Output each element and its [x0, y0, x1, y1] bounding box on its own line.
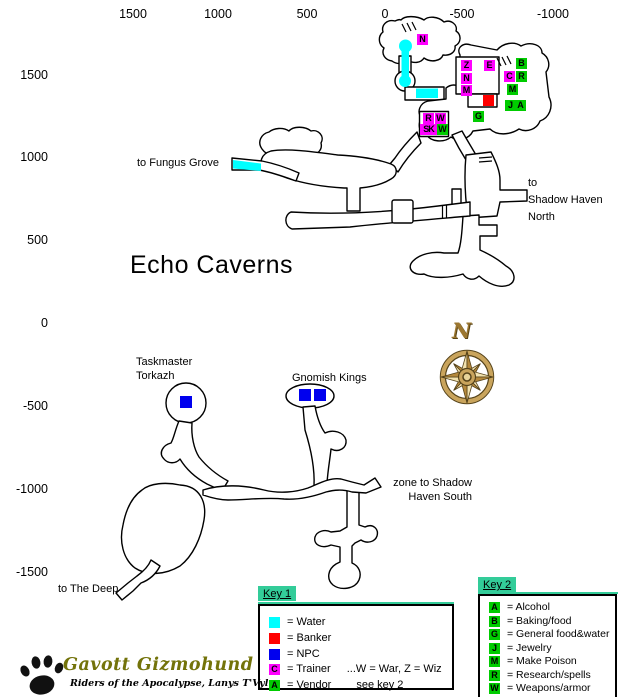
axis-top-label: 0: [363, 7, 407, 21]
cave-room-southwest: [122, 483, 205, 573]
vendor-marker: M: [507, 84, 518, 95]
key2-box: A = Alcohol B = Baking/food G = General …: [478, 594, 617, 697]
key1-row-water: = Water: [269, 616, 325, 628]
axis-top-label: -1000: [531, 7, 575, 21]
vendor-swatch: G: [489, 629, 500, 640]
key2-row: M = Make Poison: [489, 655, 577, 667]
vendor-swatch: A: [489, 602, 500, 613]
key-label: = Jewelry: [507, 642, 552, 654]
label-fungus-grove: to Fungus Grove: [137, 157, 219, 171]
npc-marker: [180, 396, 192, 408]
label-taskmaster: Taskmaster Torkazh: [136, 356, 192, 383]
vendor-swatch: R: [489, 670, 500, 681]
water-swatch: [269, 617, 280, 628]
key-label: = Vendor: [287, 679, 331, 691]
compass-rose: [441, 351, 494, 404]
key2-row: G = General food&water: [489, 628, 609, 640]
page-title: Echo Caverns: [130, 251, 293, 280]
label-line: Shadow Haven: [528, 192, 603, 209]
key2-row: W = Weapons/armor: [489, 682, 591, 694]
key1-row-banker: = Banker: [269, 632, 331, 644]
label-the-deep: to The Deep: [58, 583, 118, 597]
key-label: = Water: [287, 616, 325, 628]
axis-left-label: 1000: [4, 150, 48, 164]
axis-left-label: -1000: [4, 482, 48, 496]
label-line: Torkazh: [136, 370, 192, 384]
trainer-marker: Z: [461, 60, 472, 71]
key-label: = Make Poison: [507, 655, 577, 667]
axis-left-label: 0: [4, 316, 48, 330]
label-line: Haven South: [377, 491, 472, 505]
axis-left-label: 1500: [4, 68, 48, 82]
axis-top-label: -500: [440, 7, 484, 21]
label-line: to: [528, 175, 603, 192]
key2-title: Key 2: [478, 577, 516, 592]
key-label: = Research/spells: [507, 669, 591, 681]
key1-row-trainer: C = Trainer ...W = War, Z = Wiz: [269, 663, 442, 675]
trainer-marker: C: [504, 71, 515, 82]
key2-row: R = Research/spells: [489, 669, 591, 681]
banker-swatch: [269, 633, 280, 644]
axis-left-label: 500: [4, 233, 48, 247]
npc-swatch: [269, 649, 280, 660]
axis-top-label: 500: [285, 7, 329, 21]
trainer-marker: N: [461, 73, 472, 84]
vendor-marker: B: [516, 58, 527, 69]
vendor-marker: W: [437, 124, 448, 135]
vendor-marker: A: [515, 100, 526, 111]
label-shadow-haven-north: to Shadow Haven North: [528, 175, 603, 226]
key-label: = General food&water: [507, 628, 609, 640]
trainer-marker: SK: [420, 124, 437, 135]
key2-row: B = Baking/food: [489, 615, 572, 627]
key-label: = Alcohol: [507, 601, 550, 613]
key1-row-vendor: A = Vendor see key 2: [269, 679, 403, 691]
echo-caverns-map: 1500 1000 500 0 -500 -1000 1500 1000 500…: [0, 0, 626, 697]
axis-top-label: 1000: [196, 7, 240, 21]
logo-name: Gavott Gizmohund: [63, 655, 254, 675]
key1-box: = Water = Banker = NPC C = Trainer ...W …: [258, 604, 454, 690]
axis-left-label: -1500: [4, 565, 48, 579]
vendor-marker: G: [473, 111, 484, 122]
key-note: see key 2: [356, 679, 403, 691]
trainer-marker: E: [484, 60, 495, 71]
label-line: zone to Shadow: [377, 477, 472, 491]
vendor-swatch: A: [269, 680, 280, 691]
cave-room-center: [261, 150, 396, 211]
label-shadow-haven-south: zone to Shadow Haven South: [377, 477, 472, 504]
compass-north-label: N: [452, 318, 471, 343]
npc-marker: [299, 389, 311, 401]
paw-print-icon: [19, 655, 65, 697]
vendor-swatch: B: [489, 616, 500, 627]
vendor-swatch: J: [489, 643, 500, 654]
key-note: ...W = War, Z = Wiz: [347, 663, 442, 675]
axis-left-label: -500: [4, 399, 48, 413]
banker-marker: [483, 95, 494, 106]
axis-top-label: 1500: [111, 7, 155, 21]
key-label: = Trainer: [287, 663, 331, 675]
npc-marker: [314, 389, 326, 401]
trainer-marker: W: [435, 113, 446, 124]
vendor-marker: R: [516, 71, 527, 82]
cave-passage-shn: [465, 152, 527, 218]
cave-outlines-north: [232, 17, 551, 287]
label-gnomish-kings: Gnomish Kings: [292, 372, 367, 386]
key1-row-npc: = NPC: [269, 648, 320, 660]
cave-outlines-south: [116, 383, 381, 600]
label-line: Taskmaster: [136, 356, 192, 370]
key-label: = Baking/food: [507, 615, 572, 627]
vendor-swatch: M: [489, 656, 500, 667]
key-label: = Weapons/armor: [507, 682, 591, 694]
label-line: North: [528, 209, 603, 226]
key2-row: A = Alcohol: [489, 601, 550, 613]
key-label: = NPC: [287, 648, 320, 660]
trainer-marker: N: [417, 34, 428, 45]
key1-title: Key 1: [258, 586, 296, 601]
vendor-swatch: W: [489, 683, 500, 694]
trainer-swatch: C: [269, 664, 280, 675]
trainer-marker: M: [461, 85, 472, 96]
trainer-marker: R: [423, 113, 434, 124]
key2-row: J = Jewelry: [489, 642, 552, 654]
logo-tagline: Riders of the Apocalypse, Lanys T'Vyl: [70, 678, 268, 689]
key-label: = Banker: [287, 632, 331, 644]
